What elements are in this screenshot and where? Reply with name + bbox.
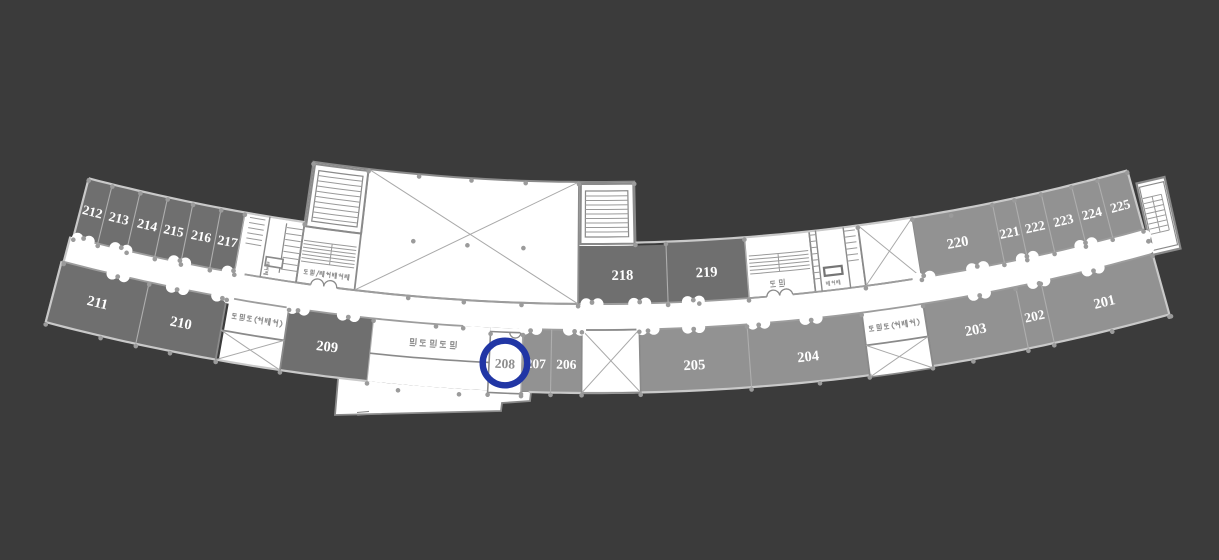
svg-text:219: 219 xyxy=(695,264,718,281)
svg-text:205: 205 xyxy=(683,357,705,374)
svg-text:218: 218 xyxy=(611,268,633,284)
svg-text:209: 209 xyxy=(315,338,339,357)
svg-text:208: 208 xyxy=(495,356,516,372)
svg-text:206: 206 xyxy=(556,357,577,372)
svg-text:204: 204 xyxy=(797,348,820,366)
